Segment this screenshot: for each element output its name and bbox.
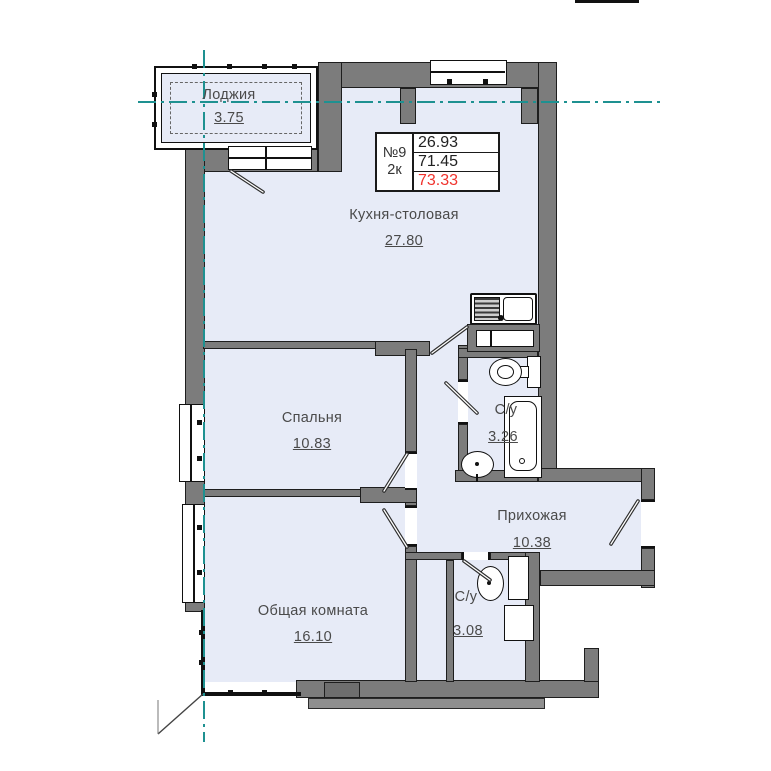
kitchen-window-tick	[483, 79, 488, 84]
loggia-window-tick	[152, 122, 157, 127]
wall-bedroom-living	[203, 489, 363, 497]
wall-top-left-jog	[318, 62, 342, 172]
hallway-floor-2	[540, 552, 641, 572]
corner-chamfer-line	[158, 694, 203, 734]
loggia-window-tick	[292, 64, 297, 69]
entry-door-opening	[641, 500, 655, 548]
bathroom1-label: С/у	[495, 402, 518, 418]
toilet-bowl-inner	[497, 365, 514, 379]
page-corner-mark	[575, 0, 639, 3]
wall-bottom-outer-band	[308, 698, 545, 709]
loggia-window-tick	[227, 64, 232, 69]
kitchen-window	[430, 60, 507, 85]
bathroom1-washbasin-tap	[475, 462, 479, 466]
loggia-area: 3.75	[214, 110, 244, 126]
living-room-window-tick	[197, 570, 202, 575]
unit-type: 2к	[387, 162, 401, 179]
bedroom-window	[179, 404, 205, 482]
bathroom2-door-opening	[462, 552, 490, 560]
loggia-window-tick	[152, 92, 157, 97]
bathroom2-label: С/у	[455, 589, 478, 605]
wall-stub-bottom-right	[584, 648, 599, 682]
living-room-floor	[203, 492, 407, 682]
wall-kitchen-bedroom	[203, 341, 377, 349]
hallway-label: Прихожая	[497, 508, 567, 524]
corner-glazing-tick	[262, 690, 267, 695]
living-room-label: Общая комната	[258, 603, 368, 619]
wall-kitchen-bedroom-thick	[375, 341, 430, 356]
bathtub-drain	[519, 458, 525, 464]
living-room-door-opening	[405, 506, 417, 546]
kitchen-area: 27.80	[385, 233, 423, 249]
loggia-window-tick	[262, 64, 267, 69]
living-room-area: 16.10	[294, 629, 332, 645]
living-room-window-tick	[197, 525, 202, 530]
floor-plan: №9 2к 26.93 71.45 73.33 Лоджия 3.75 Кухн…	[0, 0, 771, 771]
wall-hallway-right-upper	[641, 468, 655, 500]
balcony-unit-sash-line	[229, 157, 311, 159]
bedroom-area: 10.83	[293, 436, 331, 452]
bathroom2-duct	[508, 556, 529, 600]
corner-glazing-horizontal	[201, 692, 301, 696]
hallway-area: 10.38	[513, 535, 551, 551]
vent-shaft-inner	[476, 330, 534, 347]
wall-living-right	[405, 546, 417, 682]
bedroom-window-tick	[197, 420, 202, 425]
bathroom2-appliance-box	[504, 605, 534, 641]
closet-floor	[417, 560, 446, 682]
kitchen-sink-drainer	[474, 297, 500, 321]
wall-hallway-bottom	[540, 570, 655, 586]
bathroom2-washbasin-tap	[487, 581, 491, 585]
unit-area-with-balcony: 73.33	[414, 172, 498, 190]
wall-bathroom2-top-left	[405, 552, 462, 560]
vent-shaft-divider	[490, 331, 492, 346]
unit-areas-cell: 26.93 71.45 73.33	[414, 134, 498, 190]
kitchen-window-sash	[431, 71, 505, 73]
bedroom-window-mullion	[190, 405, 192, 481]
axis-line-vertical	[203, 50, 205, 742]
wall-bathroom2-left	[446, 560, 454, 682]
unit-area-living: 26.93	[414, 134, 498, 153]
bathroom1-washbasin-stem	[476, 474, 478, 482]
wall-hallway-top	[538, 468, 655, 482]
wall-bottom-pilaster	[324, 682, 360, 698]
kitchen-sink-tap	[498, 315, 504, 321]
kitchen-label: Кухня-столовая	[349, 207, 458, 223]
bathroom1-door-opening	[458, 380, 468, 424]
corner-glazing-tick	[228, 690, 233, 695]
unit-number-cell: №9 2к	[377, 134, 414, 190]
loggia-window-tick	[192, 64, 197, 69]
kitchen-window-tick	[447, 79, 452, 84]
bathroom2-area: 3.08	[453, 623, 483, 639]
unit-info-box: №9 2к 26.93 71.45 73.33	[375, 132, 500, 192]
kitchen-sink-bowl	[503, 297, 533, 321]
living-room-window-mullion	[193, 505, 195, 602]
bedroom-window-tick	[197, 456, 202, 461]
bedroom-label: Спальня	[282, 410, 342, 426]
wall-pilaster-window-left	[400, 88, 416, 124]
unit-number: №9	[383, 145, 407, 162]
bathroom1-area: 3.26	[488, 429, 518, 445]
bedroom-door-opening	[405, 452, 417, 490]
loggia-label: Лоджия	[202, 87, 255, 103]
unit-area-total: 71.45	[414, 153, 498, 172]
wall-pilaster-window-right	[521, 88, 538, 124]
wall-bedroom-right-upper	[405, 349, 417, 452]
toilet-tank	[527, 356, 541, 388]
